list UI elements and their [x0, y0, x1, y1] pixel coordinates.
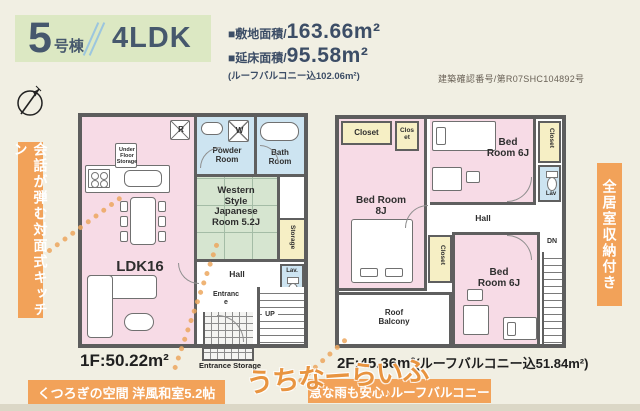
roof-balcony-label: Roof Balcony [369, 309, 419, 327]
room-ldk-label: LDK16 [110, 259, 170, 276]
chair-icon [158, 231, 166, 242]
closet-bedroom8: Closet [341, 121, 392, 145]
room-japanese-label: Western Style Japanese Room 5.2J [206, 186, 266, 229]
pillow-icon [436, 127, 446, 145]
room-lav-1f-label: Lav. [282, 268, 302, 275]
chair-icon [158, 201, 166, 212]
desk-icon [463, 305, 489, 335]
floor1-area-label: 1F:50.22m² [80, 351, 169, 371]
kitchen-sink-icon [124, 170, 162, 187]
unit-suffix: 号棟 [54, 35, 84, 56]
roof-balcony: Roof Balcony [339, 292, 452, 344]
left-feature-text: 会話が弾む対面式キッチン [11, 142, 51, 318]
room-japanese: Western Style Japanese Room 5.2J [197, 177, 280, 262]
stairs-down-label: DN [542, 238, 562, 246]
closet-mid-label: Closet [439, 245, 446, 265]
compass-icon [14, 82, 48, 120]
closet-right: Closet [538, 121, 561, 163]
unit-number: 5 [28, 17, 52, 60]
room-bedroom-8j: Closet Closet Bed Room 8J [339, 119, 427, 291]
closet-mid: Closet [428, 235, 452, 283]
stairs-down [542, 252, 562, 344]
washer-icon: W [228, 120, 249, 142]
layout-type: 4LDK [112, 22, 192, 55]
closet-right-label: Closet [548, 128, 555, 148]
room-storage-label: Storage [289, 225, 296, 249]
room-hall-2f: Hall [430, 205, 536, 232]
kitchen-counter [85, 165, 170, 193]
site-area-value: 163.66m² [287, 20, 381, 44]
room-bedroom-6j-top-label: Bed Room 6J [486, 137, 530, 159]
under-floor-storage-label: Under Floor Storage [116, 147, 138, 165]
room-bedroom-6j-bottom-label: Bed Room 6J [477, 267, 521, 289]
entrance-storage [202, 347, 254, 361]
area-info: ■敷地面積/ 163.66m² ■延床面積/ 95.58m² (ルーフバルコニー… [228, 20, 381, 82]
room-lav-2f-label: Lav [542, 191, 560, 198]
site-area-label: ■敷地面積/ [228, 25, 287, 42]
coffee-table-icon [124, 313, 154, 331]
floor-area-note: (ルーフバルコニー込102.06m²) [228, 68, 381, 82]
floor-area-label: ■延床面積/ [228, 49, 287, 66]
toilet-icon [547, 177, 557, 191]
room-powder: W Powder Room [197, 117, 257, 177]
refrigerator-icon: R [170, 120, 190, 140]
desk-icon [432, 167, 462, 191]
chair-icon [120, 201, 128, 212]
washer-mark: W [229, 127, 250, 136]
refrigerator-mark: R [171, 126, 191, 135]
pillow-icon [385, 268, 403, 277]
dining-table-icon [130, 197, 156, 245]
pillow-icon [507, 322, 516, 336]
single-bed-icon [503, 317, 537, 340]
stove-icon [88, 169, 110, 188]
chair-icon [120, 216, 128, 227]
building-confirmation-number: 建築確認番号/第R07SHC104892号 [438, 72, 584, 85]
chair-icon [466, 171, 480, 183]
room-lav-2f: Lav [538, 165, 561, 202]
right-feature-text: 全居室収納付き [600, 179, 620, 291]
stairs-up-label: UP [262, 311, 278, 319]
wash-basin-icon [201, 122, 223, 135]
under-floor-storage: Under Floor Storage [115, 143, 137, 168]
chair-icon [158, 216, 166, 227]
right-feature-banner: 全居室収納付き [597, 163, 622, 306]
room-hall-2f-label: Hall [463, 214, 503, 224]
floorplan-flyer: 5 号棟 4LDK ■敷地面積/ 163.66m² ■延床面積/ 95.58m²… [0, 0, 640, 411]
unit-header: 5 号棟 4LDK [15, 15, 211, 62]
bottom-left-banner: くつろぎの空間 洋風和室5.2帖 [28, 380, 225, 404]
double-bed-icon [351, 219, 413, 283]
room-storage: Storage [280, 220, 304, 262]
pillow-icon [360, 268, 378, 277]
bathtub-icon [260, 122, 299, 141]
bottom-edge [0, 404, 640, 411]
stairs-up: UP [257, 287, 304, 344]
room-entrance: Entrance [203, 287, 250, 312]
bottom-left-banner-text: くつろぎの空間 洋風和室5.2帖 [38, 383, 216, 402]
left-feature-banner: 会話が弾む対面式キッチン [18, 142, 43, 318]
room-ldk: LDK16 R Under Floor Storage [82, 117, 197, 344]
room-hall-1f-label: Hall [217, 270, 257, 280]
closet-bedroom8-small-label: Closet [399, 127, 415, 142]
closet-1f [280, 177, 304, 220]
closet-bedroom8-label: Closet [343, 129, 390, 138]
floor2-plan: Closet Closet Bed Room 8J Bed Room 6J Cl… [335, 115, 566, 348]
room-bedroom-8j-label: Bed Room 8J [355, 195, 407, 217]
sofa-icon [87, 275, 113, 338]
closet-bedroom8-small: Closet [395, 121, 419, 151]
chair-icon [120, 231, 128, 242]
room-entrance-label: Entrance [212, 291, 240, 307]
chair-icon [467, 289, 483, 301]
floor2-area-note: (ルーフバルコニー込51.84m²) [415, 356, 588, 371]
floor-area-value: 95.58m² [287, 44, 369, 68]
